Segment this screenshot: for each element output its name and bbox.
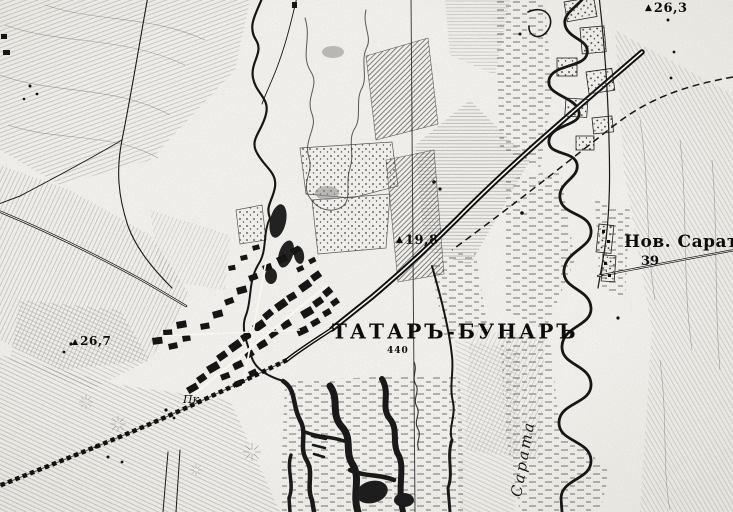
triangulation-icon: ▲ [396, 236, 403, 245]
triangulation-icon: ▲ [72, 337, 78, 345]
elevation-marker-center: ▲ 19,8 [396, 234, 439, 247]
elevation-value: 19,8 [405, 234, 439, 247]
village-household-count: 39 [641, 255, 659, 268]
town-household-count: 440 [387, 347, 409, 356]
map-canvas[interactable]: ТАТАРЪ-БУНАРЪ 440 Нов. Сарат 39 ▲ 26,3 ▲… [0, 0, 733, 512]
town-label: ТАТАРЪ-БУНАРЪ [332, 321, 579, 342]
village-label: Нов. Сарат [624, 234, 733, 251]
elevation-marker-west: ▲ 26,7 [72, 335, 111, 347]
site-abbrev-label: Пк. [183, 394, 203, 405]
elevation-value: 26,7 [80, 335, 111, 347]
triangulation-icon: ▲ [645, 4, 652, 13]
elevation-marker-ne: ▲ 26,3 [645, 2, 688, 15]
map-artwork [0, 0, 733, 512]
elevation-value: 26,3 [654, 2, 688, 15]
